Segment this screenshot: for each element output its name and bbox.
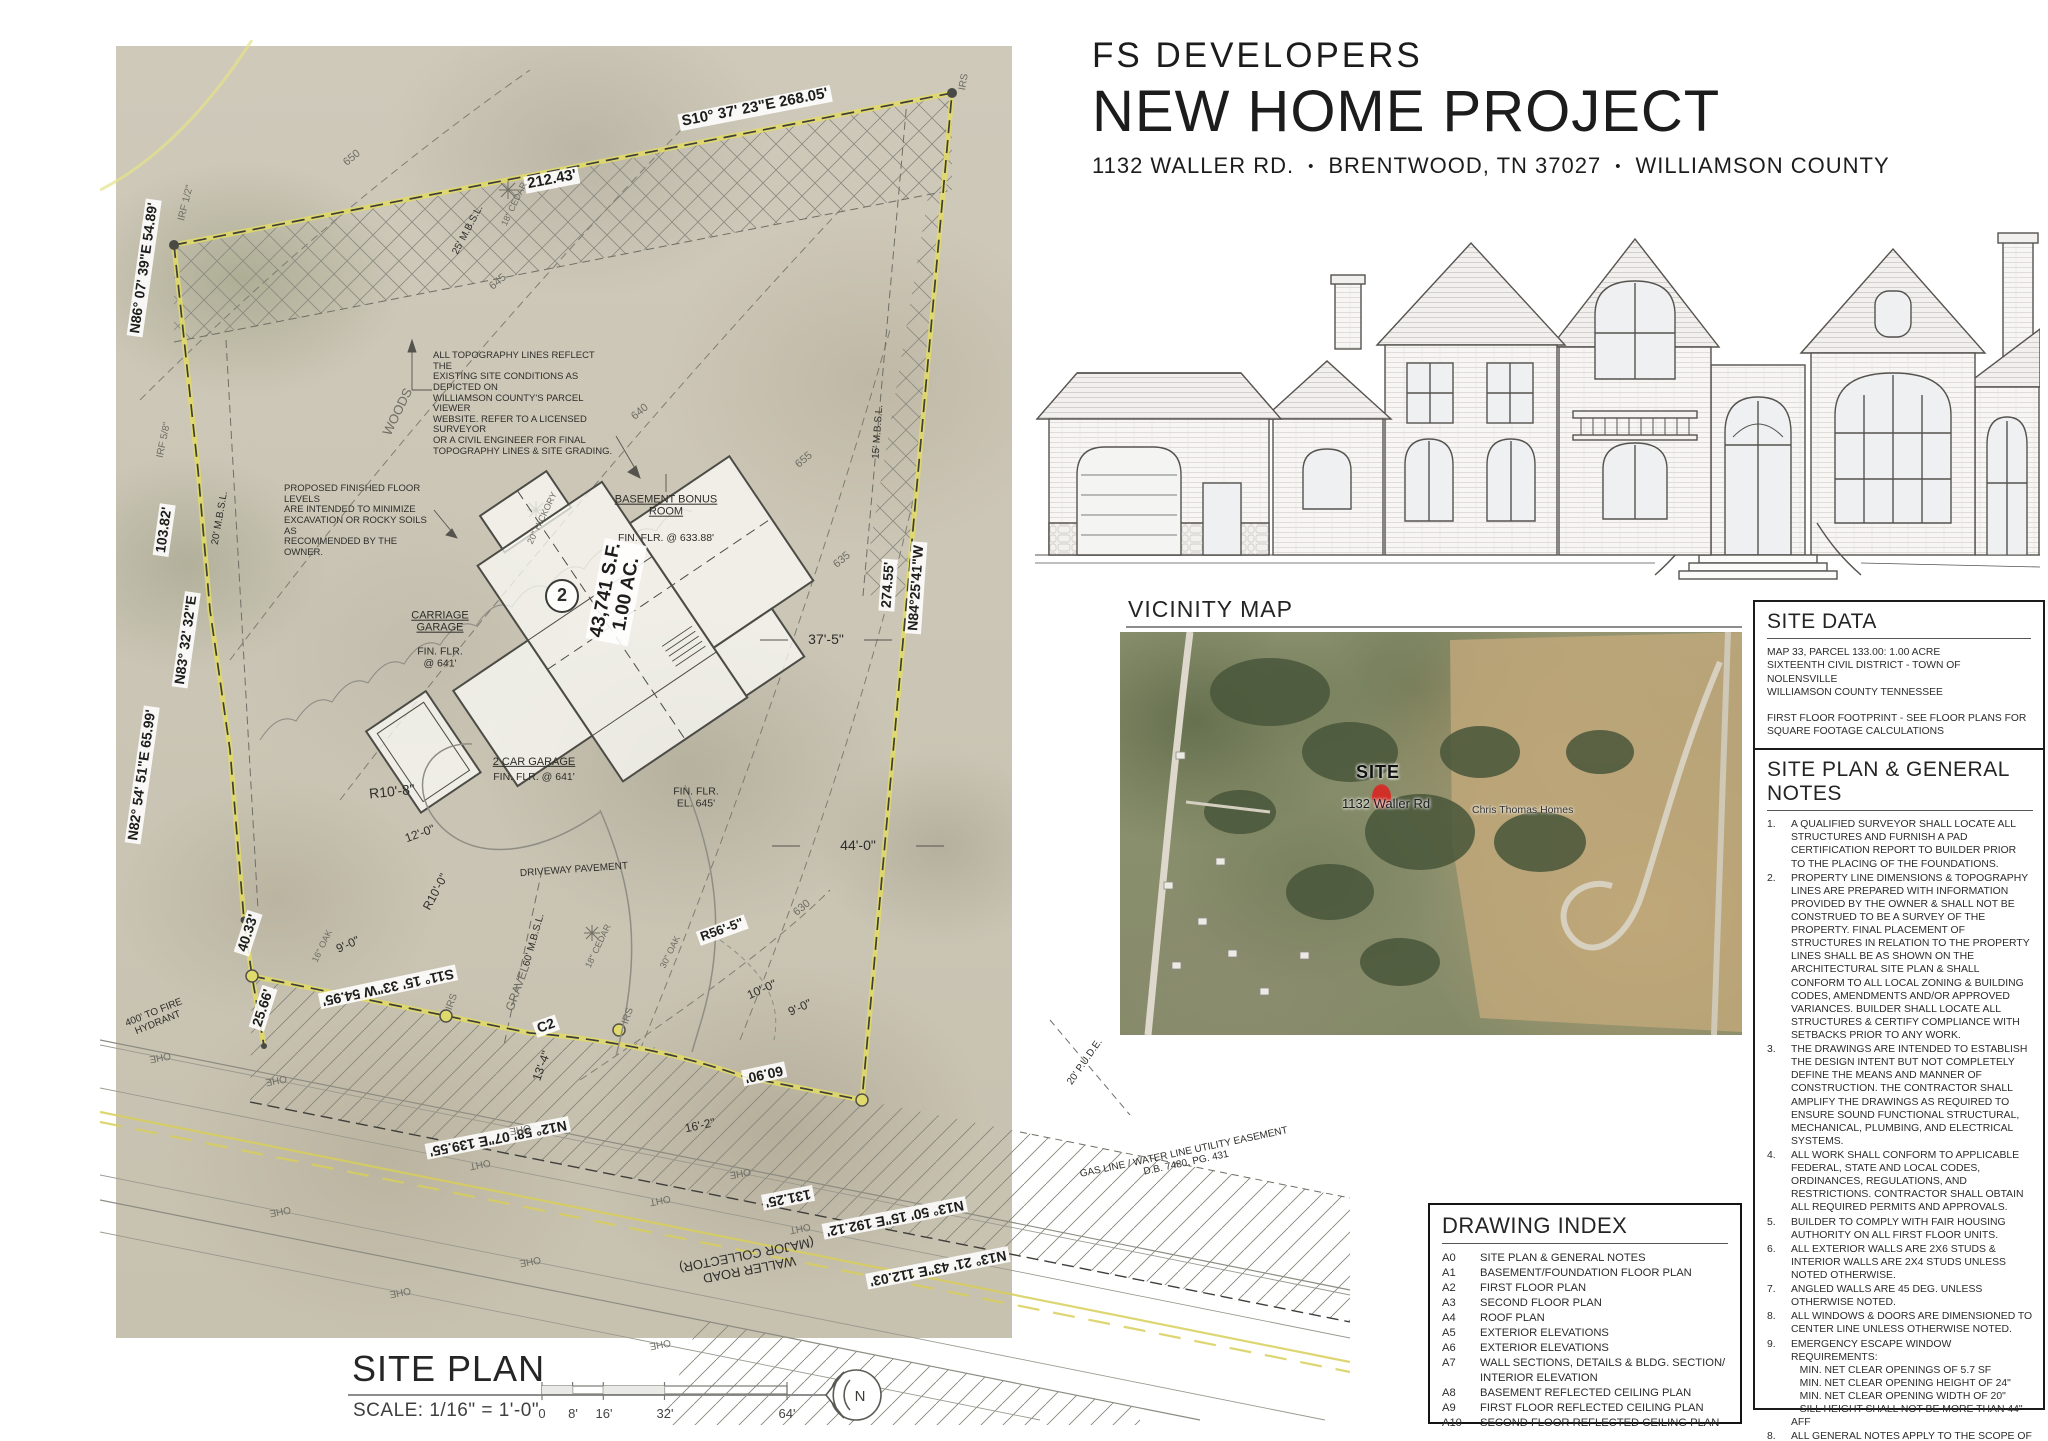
- svg-text:N: N: [855, 1388, 866, 1405]
- sheet-label: SECOND FLOOR REFLECTED CEILING PLAN: [1480, 1416, 1728, 1431]
- sheet-code: A6: [1442, 1341, 1480, 1356]
- site-data-title: SITE DATA: [1767, 610, 2031, 639]
- drawing-index-item: A7WALL SECTIONS, DETAILS & BLDG. SECTION…: [1442, 1356, 1728, 1385]
- sheet-code: A2: [1442, 1281, 1480, 1296]
- vicinity-neighbor-label: Chris Thomas Homes: [1472, 804, 1573, 816]
- note-item: 9.EMERGENCY ESCAPE WINDOW REQUIREMENTS: …: [1767, 1338, 2033, 1430]
- sheet-code: A0: [1442, 1251, 1480, 1266]
- bullet-icon: •: [1308, 158, 1314, 175]
- sheet-code: A5: [1442, 1326, 1480, 1341]
- drawing-index-item: A1BASEMENT/FOUNDATION FLOOR PLAN: [1442, 1266, 1728, 1281]
- note-item: 4.ALL WORK SHALL CONFORM TO APPLICABLE F…: [1767, 1149, 2033, 1215]
- note-number: 9.: [1767, 1338, 1791, 1430]
- note-item: 2.PROPERTY LINE DIMENSIONS & TOPOGRAPHY …: [1767, 872, 2033, 1042]
- note-item: 1.A QUALIFIED SURVEYOR SHALL LOCATE ALL …: [1767, 818, 2033, 870]
- sheet-code: A3: [1442, 1296, 1480, 1311]
- site-data-paragraph: MAP 33, PARCEL 133.00: 1.00 ACRE SIXTEEN…: [1767, 646, 2031, 700]
- drawing-index-item: A3SECOND FLOOR PLAN: [1442, 1296, 1728, 1311]
- general-notes-section: SITE PLAN & GENERAL NOTES 1.A QUALIFIED …: [1755, 750, 2043, 1441]
- drawing-index-item: A4ROOF PLAN: [1442, 1311, 1728, 1326]
- sheet-label: WALL SECTIONS, DETAILS & BLDG. SECTION/ …: [1480, 1356, 1728, 1385]
- sheet-code: A9: [1442, 1401, 1480, 1416]
- sheet-label: FIRST FLOOR REFLECTED CEILING PLAN: [1480, 1401, 1728, 1416]
- vicinity-map: SITE 1132 Waller Rd Chris Thomas Homes: [1120, 632, 1742, 1035]
- note-text: THE DRAWINGS ARE INTENDED TO ESTABLISH T…: [1791, 1043, 2033, 1148]
- note-text: BUILDER TO COMPLY WITH FAIR HOUSING AUTH…: [1791, 1216, 2033, 1242]
- vicinity-site-label: SITE: [1356, 762, 1400, 783]
- bullet-icon: •: [1615, 158, 1621, 175]
- note-item: 3.THE DRAWINGS ARE INTENDED TO ESTABLISH…: [1767, 1043, 2033, 1148]
- note-text: ANGLED WALLS ARE 45 DEG. UNLESS OTHERWIS…: [1791, 1283, 2033, 1309]
- sheet-label: EXTERIOR ELEVATIONS: [1480, 1326, 1728, 1341]
- company-name: FS DEVELOPERS: [1092, 36, 2042, 76]
- site-data-paragraph: FIRST FLOOR FOOTPRINT - SEE FLOOR PLANS …: [1767, 712, 2031, 739]
- note-number: 8.: [1767, 1430, 1791, 1441]
- note-item: 6.ALL EXTERIOR WALLS ARE 2X6 STUDS & INT…: [1767, 1243, 2033, 1282]
- drawing-sheet: S10° 37' 23"E 268.05'212.43'N86° 07' 39"…: [0, 0, 2048, 1441]
- sheet-label: FIRST FLOOR PLAN: [1480, 1281, 1728, 1296]
- drawing-index-item: A9FIRST FLOOR REFLECTED CEILING PLAN: [1442, 1401, 1728, 1416]
- sheet-code: A8: [1442, 1386, 1480, 1401]
- title-header: FS DEVELOPERS NEW HOME PROJECT 1132 WALL…: [1092, 36, 2042, 179]
- sheet-label: SECOND FLOOR PLAN: [1480, 1296, 1728, 1311]
- address-county: WILLIAMSON COUNTY: [1636, 153, 1890, 179]
- note-text: ALL WORK SHALL CONFORM TO APPLICABLE FED…: [1791, 1149, 2033, 1215]
- drawing-index-item: A6EXTERIOR ELEVATIONS: [1442, 1341, 1728, 1356]
- scale-tick: 16': [596, 1406, 613, 1421]
- project-address: 1132 WALLER RD. • BRENTWOOD, TN 37027 • …: [1092, 153, 2042, 179]
- elevation-drawing: [1035, 183, 2040, 591]
- sheet-code: A1: [1442, 1266, 1480, 1281]
- sheet-label: ROOF PLAN: [1480, 1311, 1728, 1326]
- sheet-code: A7: [1442, 1356, 1480, 1385]
- sheet-label: BASEMENT REFLECTED CEILING PLAN: [1480, 1386, 1728, 1401]
- site-plan-scale: SCALE: 1/16" = 1'-0": [353, 1400, 539, 1422]
- sheet-code: A4: [1442, 1311, 1480, 1326]
- note-number: 6.: [1767, 1243, 1791, 1282]
- note-text: A QUALIFIED SURVEYOR SHALL LOCATE ALL ST…: [1791, 818, 2033, 870]
- scale-tick: 32': [657, 1406, 674, 1421]
- note-text: ALL EXTERIOR WALLS ARE 2X6 STUDS & INTER…: [1791, 1243, 2033, 1282]
- address-city: BRENTWOOD, TN 37027: [1328, 153, 1601, 179]
- note-number: 7.: [1767, 1283, 1791, 1309]
- general-notes-title: SITE PLAN & GENERAL NOTES: [1767, 758, 2033, 811]
- note-text: EMERGENCY ESCAPE WINDOW REQUIREMENTS: MI…: [1791, 1338, 2033, 1430]
- right-column: SITE DATA MAP 33, PARCEL 133.00: 1.00 AC…: [1753, 600, 2045, 1410]
- title-underline: [1126, 626, 1742, 628]
- note-number: 4.: [1767, 1149, 1791, 1215]
- vicinity-address-label: 1132 Waller Rd: [1342, 796, 1430, 811]
- vicinity-map-title: VICINITY MAP: [1128, 596, 1293, 623]
- sheet-code: A10: [1442, 1416, 1480, 1431]
- note-text: PROPERTY LINE DIMENSIONS & TOPOGRAPHY LI…: [1791, 872, 2033, 1042]
- scale-tick: 0: [538, 1406, 545, 1421]
- drawing-index-item: A5EXTERIOR ELEVATIONS: [1442, 1326, 1728, 1341]
- project-title: NEW HOME PROJECT: [1092, 78, 2042, 145]
- site-plan-title: SITE PLAN: [352, 1348, 545, 1390]
- note-text: ALL GENERAL NOTES APPLY TO THE SCOPE OF …: [1791, 1430, 2033, 1441]
- note-number: 1.: [1767, 818, 1791, 870]
- north-arrow-icon: N: [820, 1362, 888, 1430]
- note-text: ALL WINDOWS & DOORS ARE DIMENSIONED TO C…: [1791, 1310, 2033, 1336]
- drawing-index-title: DRAWING INDEX: [1442, 1213, 1728, 1244]
- scale-tick: 64': [779, 1406, 796, 1421]
- address-street: 1132 WALLER RD.: [1092, 153, 1294, 179]
- site-data-section: SITE DATA MAP 33, PARCEL 133.00: 1.00 AC…: [1755, 602, 2043, 750]
- note-number: 8.: [1767, 1310, 1791, 1336]
- note-number: 2.: [1767, 872, 1791, 1042]
- drawing-index-item: A0SITE PLAN & GENERAL NOTES: [1442, 1251, 1728, 1266]
- note-number: 3.: [1767, 1043, 1791, 1148]
- drawing-index-item: A8BASEMENT REFLECTED CEILING PLAN: [1442, 1386, 1728, 1401]
- sheet-label: SITE PLAN & GENERAL NOTES: [1480, 1251, 1728, 1266]
- scale-tick: 8': [568, 1406, 578, 1421]
- sheet-label: BASEMENT/FOUNDATION FLOOR PLAN: [1480, 1266, 1728, 1281]
- drawing-index-item: A2FIRST FLOOR PLAN: [1442, 1281, 1728, 1296]
- drawing-index-section: DRAWING INDEX A0SITE PLAN & GENERAL NOTE…: [1428, 1203, 1742, 1424]
- note-item: 8.ALL WINDOWS & DOORS ARE DIMENSIONED TO…: [1767, 1310, 2033, 1336]
- note-item: 5.BUILDER TO COMPLY WITH FAIR HOUSING AU…: [1767, 1216, 2033, 1242]
- note-number: 5.: [1767, 1216, 1791, 1242]
- drawing-index-item: A10SECOND FLOOR REFLECTED CEILING PLAN: [1442, 1416, 1728, 1431]
- scale-bar: 0 8' 16' 32' 64': [540, 1378, 840, 1428]
- note-item: 8.ALL GENERAL NOTES APPLY TO THE SCOPE O…: [1767, 1430, 2033, 1441]
- sheet-label: EXTERIOR ELEVATIONS: [1480, 1341, 1728, 1356]
- note-item: 7.ANGLED WALLS ARE 45 DEG. UNLESS OTHERW…: [1767, 1283, 2033, 1309]
